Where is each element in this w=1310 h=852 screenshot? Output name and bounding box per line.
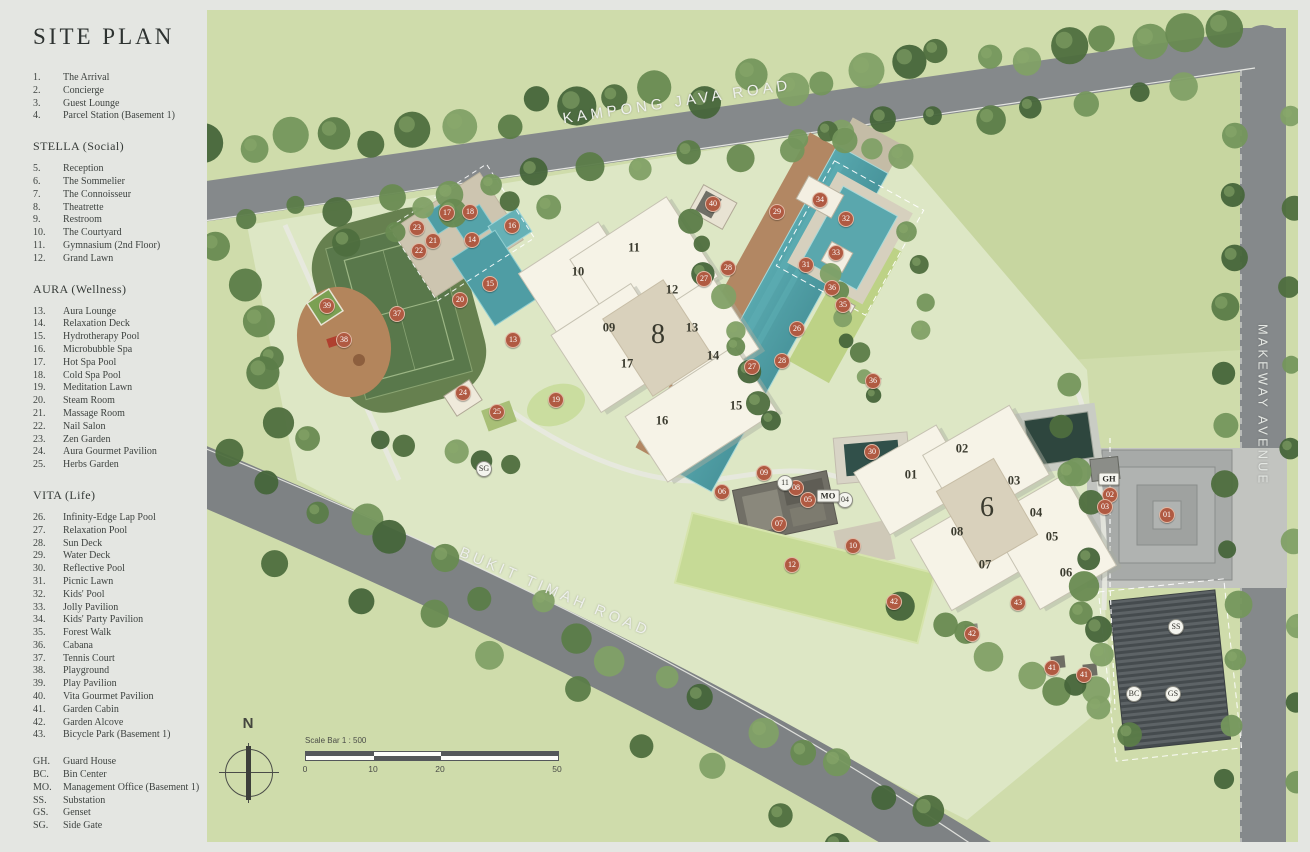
legend-item-number: 41.	[33, 704, 63, 717]
unit-label-16: 16	[656, 414, 669, 429]
legend-item: 31.Picnic Lawn	[33, 576, 207, 589]
legend-item-label: Vita Gourmet Pavilion	[63, 691, 207, 704]
legend-item: 35.Forest Walk	[33, 627, 207, 640]
legend-heading: VITA (Life)	[33, 488, 207, 503]
scale-tick: 10	[368, 764, 377, 774]
legend-item-number: 28.	[33, 538, 63, 551]
amenity-marker-42: 42	[964, 626, 980, 642]
legend-item-label: Herbs Garden	[63, 459, 207, 472]
legend-item-number: 14.	[33, 318, 63, 331]
legend-item-label: Cabana	[63, 640, 207, 653]
amenity-marker-15: 15	[482, 276, 498, 292]
road-label-makeway-avenue: MAKEWAY AVENUE	[1256, 324, 1271, 486]
unit-label-06: 06	[1060, 566, 1073, 581]
legend-item-number: 26.	[33, 512, 63, 525]
amenity-marker-14: 14	[464, 232, 480, 248]
legend-item-label: Genset	[63, 807, 207, 820]
legend-item: 33.Jolly Pavilion	[33, 602, 207, 615]
legend-item: 21.Massage Room	[33, 408, 207, 421]
amenity-marker-41: 41	[1076, 667, 1092, 683]
legend-item: 19.Meditation Lawn	[33, 382, 207, 395]
legend-item-label: Steam Room	[63, 395, 207, 408]
legend-panel: SITE PLAN 1.The Arrival2.Concierge3.Gues…	[0, 0, 207, 852]
legend-item-number: 15.	[33, 331, 63, 344]
legend-item: 3.Guest Lounge	[33, 98, 207, 111]
scale-tick: 50	[552, 764, 561, 774]
legend-item: BC.Bin Center	[33, 769, 207, 782]
legend-item-number: SG.	[33, 820, 63, 833]
legend-item: 6.The Sommelier	[33, 176, 207, 189]
unit-label-07: 07	[979, 558, 992, 573]
amenity-marker-36: 36	[824, 280, 840, 296]
legend-item: 12.Grand Lawn	[33, 253, 207, 266]
unit-label-10: 10	[572, 265, 585, 280]
legend-item-label: Restroom	[63, 214, 207, 227]
legend-item: 24.Aura Gourmet Pavilion	[33, 446, 207, 459]
legend-item-label: Microbubble Spa	[63, 344, 207, 357]
legend-item-label: The Courtyard	[63, 227, 207, 240]
legend-item-number: 6.	[33, 176, 63, 189]
amenity-marker-27: 27	[696, 271, 712, 287]
legend-item: 29.Water Deck	[33, 550, 207, 563]
amenity-marker-19: 19	[548, 392, 564, 408]
legend-item-number: 25.	[33, 459, 63, 472]
legend-item-number: 8.	[33, 202, 63, 215]
legend-item: 38.Playground	[33, 665, 207, 678]
legend-item-number: 27.	[33, 525, 63, 538]
unit-label-04: 04	[1030, 506, 1043, 521]
legend-item: GH.Guard House	[33, 756, 207, 769]
legend-item: 13.Aura Lounge	[33, 306, 207, 319]
legend-item-number: 22.	[33, 421, 63, 434]
legend-item-number: 7.	[33, 189, 63, 202]
compass-north-label: N	[243, 715, 254, 732]
amenity-marker-03: 03	[1097, 499, 1113, 515]
legend-item: 17.Hot Spa Pool	[33, 357, 207, 370]
legend-item-label: Bin Center	[63, 769, 207, 782]
legend-item-number: GS.	[33, 807, 63, 820]
amenity-marker-18: 18	[462, 204, 478, 220]
amenity-marker-12: 12	[784, 557, 800, 573]
legend-item-number: MO.	[33, 782, 63, 795]
amenity-marker-41: 41	[1044, 660, 1060, 676]
amenity-marker-10: 10	[845, 538, 861, 554]
amenity-marker-21: 21	[425, 233, 441, 249]
legend-item: 40.Vita Gourmet Pavilion	[33, 691, 207, 704]
legend-item-number: SS.	[33, 795, 63, 808]
legend-item-number: 20.	[33, 395, 63, 408]
legend-item: 39.Play Pavilion	[33, 678, 207, 691]
legend-item-label: Meditation Lawn	[63, 382, 207, 395]
legend-item: 27.Relaxation Pool	[33, 525, 207, 538]
legend-item: 9.Restroom	[33, 214, 207, 227]
unit-label-15: 15	[730, 399, 743, 414]
legend-item-number: 34.	[33, 614, 63, 627]
site-plan-page: SITE PLAN 1.The Arrival2.Concierge3.Gues…	[0, 0, 1310, 852]
amenity-marker-34: 34	[812, 192, 828, 208]
amenity-marker-35: 35	[835, 297, 851, 313]
legend-item-number: 1.	[33, 72, 63, 85]
legend-item-label: Management Office (Basement 1)	[63, 782, 207, 795]
legend-item: 34.Kids' Party Pavilion	[33, 614, 207, 627]
legend-item-number: 35.	[33, 627, 63, 640]
unit-label-05: 05	[1046, 530, 1059, 545]
legend-item-label: Kids' Pool	[63, 589, 207, 602]
amenity-marker-09: 09	[756, 465, 772, 481]
legend-item-label: Infinity-Edge Lap Pool	[63, 512, 207, 525]
facility-marker-BC: BC	[1126, 686, 1142, 702]
legend-item-label: Theatrette	[63, 202, 207, 215]
amenity-marker-27: 27	[744, 359, 760, 375]
legend-item: 5.Reception	[33, 163, 207, 176]
amenity-marker-37: 37	[389, 306, 405, 322]
tower-number-8: 8	[651, 321, 665, 349]
legend-item-number: 40.	[33, 691, 63, 704]
legend-item-label: Grand Lawn	[63, 253, 207, 266]
legend-item-label: Reception	[63, 163, 207, 176]
legend-item-label: Side Gate	[63, 820, 207, 833]
legend-item: 20.Steam Room	[33, 395, 207, 408]
legend-item-label: Water Deck	[63, 550, 207, 563]
legend-item: 43.Bicycle Park (Basement 1)	[33, 729, 207, 742]
amenity-marker-23: 23	[409, 220, 425, 236]
legend-item-label: Garden Alcove	[63, 717, 207, 730]
facility-marker-MO: MO	[817, 490, 840, 503]
legend-item: 7.The Connoisseur	[33, 189, 207, 202]
scale-bar-label: Scale Bar 1 : 500	[305, 736, 366, 745]
legend-item-number: 12.	[33, 253, 63, 266]
map-illustration	[207, 10, 1298, 842]
amenity-marker-38: 38	[336, 332, 352, 348]
legend-item-number: BC.	[33, 769, 63, 782]
legend-item-label: Aura Lounge	[63, 306, 207, 319]
legend-item-number: 31.	[33, 576, 63, 589]
amenity-marker-42: 42	[886, 594, 902, 610]
legend-item-number: 5.	[33, 163, 63, 176]
legend-item-label: Hot Spa Pool	[63, 357, 207, 370]
legend-item: 32.Kids' Pool	[33, 589, 207, 602]
legend-item-label: Aura Gourmet Pavilion	[63, 446, 207, 459]
amenity-marker-28: 28	[720, 260, 736, 276]
facility-marker-SS: SS	[1168, 619, 1184, 635]
legend-item: MO.Management Office (Basement 1)	[33, 782, 207, 795]
legend-group: STELLA (Social)5.Reception6.The Sommelie…	[33, 139, 207, 265]
amenity-marker-30: 30	[864, 444, 880, 460]
legend-item: 25.Herbs Garden	[33, 459, 207, 472]
legend-item-label: Reflective Pool	[63, 563, 207, 576]
amenity-marker-40: 40	[705, 196, 721, 212]
amenity-marker-33: 33	[828, 245, 844, 261]
legend-item: 10.The Courtyard	[33, 227, 207, 240]
legend-item-number: 29.	[33, 550, 63, 563]
legend-item-number: 10.	[33, 227, 63, 240]
legend-item-number: 23.	[33, 434, 63, 447]
legend-item-number: 30.	[33, 563, 63, 576]
amenity-marker-20: 20	[452, 292, 468, 308]
legend-item-label: Garden Cabin	[63, 704, 207, 717]
legend-item: 22.Nail Salon	[33, 421, 207, 434]
legend-item: SS.Substation	[33, 795, 207, 808]
legend-item-label: Substation	[63, 795, 207, 808]
facility-marker-GH: GH	[1098, 473, 1119, 486]
legend-group: AURA (Wellness)13.Aura Lounge14.Relaxati…	[33, 282, 207, 472]
compass-icon	[225, 749, 273, 797]
legend-item: 8.Theatrette	[33, 202, 207, 215]
legend-item-number: 18.	[33, 370, 63, 383]
unit-label-13: 13	[686, 321, 699, 336]
legend-item: 36.Cabana	[33, 640, 207, 653]
amenity-marker-13: 13	[505, 332, 521, 348]
legend-item-label: Hydrotherapy Pool	[63, 331, 207, 344]
facility-marker-04: 04	[837, 492, 853, 508]
legend-item: 23.Zen Garden	[33, 434, 207, 447]
legend-item-label: Play Pavilion	[63, 678, 207, 691]
legend-item-label: Guest Lounge	[63, 98, 207, 111]
legend-item-label: Jolly Pavilion	[63, 602, 207, 615]
legend-item: GS.Genset	[33, 807, 207, 820]
legend-item: 41.Garden Cabin	[33, 704, 207, 717]
legend-item-number: 43.	[33, 729, 63, 742]
legend-item-label: Sun Deck	[63, 538, 207, 551]
legend-item-number: GH.	[33, 756, 63, 769]
legend-item-number: 42.	[33, 717, 63, 730]
legend-item-label: Nail Salon	[63, 421, 207, 434]
legend-item-number: 32.	[33, 589, 63, 602]
legend-item-number: 3.	[33, 98, 63, 111]
tower-number-6: 6	[980, 494, 994, 522]
legend-item-number: 11.	[33, 240, 63, 253]
amenity-marker-26: 26	[789, 321, 805, 337]
legend-item-label: Gymnasium (2nd Floor)	[63, 240, 207, 253]
legend-heading: AURA (Wellness)	[33, 282, 207, 297]
unit-label-03: 03	[1008, 474, 1021, 489]
unit-label-12: 12	[666, 283, 679, 298]
amenity-marker-43: 43	[1010, 595, 1026, 611]
legend-item: 16.Microbubble Spa	[33, 344, 207, 357]
unit-label-11: 11	[628, 241, 640, 256]
legend-item: SG.Side Gate	[33, 820, 207, 833]
legend-item-number: 39.	[33, 678, 63, 691]
legend-group: VITA (Life)26.Infinity-Edge Lap Pool27.R…	[33, 488, 207, 742]
legend-item: 14.Relaxation Deck	[33, 318, 207, 331]
legend-item-label: Playground	[63, 665, 207, 678]
legend-item-label: The Connoisseur	[63, 189, 207, 202]
legend-item-label: Concierge	[63, 85, 207, 98]
legend-item-number: 19.	[33, 382, 63, 395]
page-title: SITE PLAN	[33, 24, 207, 50]
scale-tick: 0	[303, 764, 308, 774]
legend-item-label: Relaxation Pool	[63, 525, 207, 538]
amenity-marker-22: 22	[411, 243, 427, 259]
amenity-marker-07: 07	[771, 516, 787, 532]
legend-item-number: 16.	[33, 344, 63, 357]
legend-item: 15.Hydrotherapy Pool	[33, 331, 207, 344]
unit-label-14: 14	[707, 349, 720, 364]
legend-item-number: 21.	[33, 408, 63, 421]
amenity-marker-31: 31	[798, 257, 814, 273]
scale-bar	[305, 751, 559, 761]
legend-group: 1.The Arrival2.Concierge3.Guest Lounge4.…	[33, 72, 207, 123]
legend-item: 2.Concierge	[33, 85, 207, 98]
legend-item-label: Parcel Station (Basement 1)	[63, 110, 207, 123]
legend-item: 26.Infinity-Edge Lap Pool	[33, 512, 207, 525]
legend-item: 4.Parcel Station (Basement 1)	[33, 110, 207, 123]
facility-marker-GS: GS	[1165, 686, 1181, 702]
unit-label-01: 01	[905, 468, 918, 483]
legend-item-label: The Sommelier	[63, 176, 207, 189]
legend-item: 37.Tennis Court	[33, 653, 207, 666]
amenity-marker-06: 06	[714, 484, 730, 500]
unit-label-09: 09	[603, 321, 616, 336]
amenity-marker-29: 29	[769, 204, 785, 220]
legend-item-label: Massage Room	[63, 408, 207, 421]
legend-item-number: 9.	[33, 214, 63, 227]
legend-item-number: 37.	[33, 653, 63, 666]
amenity-marker-05: 05	[800, 492, 816, 508]
legend-item-label: Kids' Party Pavilion	[63, 614, 207, 627]
amenity-marker-17: 17	[439, 205, 455, 221]
legend-item: 11.Gymnasium (2nd Floor)	[33, 240, 207, 253]
legend-item-number: 36.	[33, 640, 63, 653]
unit-label-17: 17	[621, 357, 634, 372]
amenity-marker-24: 24	[455, 385, 471, 401]
legend-group: GH.Guard HouseBC.Bin CenterMO.Management…	[33, 756, 207, 833]
scale-tick: 20	[435, 764, 444, 774]
legend-item-number: 2.	[33, 85, 63, 98]
amenity-marker-28: 28	[774, 353, 790, 369]
amenity-marker-36: 36	[865, 373, 881, 389]
legend-item-label: Picnic Lawn	[63, 576, 207, 589]
facility-marker-11: 11	[777, 475, 793, 491]
legend-item: 1.The Arrival	[33, 72, 207, 85]
legend-item-number: 38.	[33, 665, 63, 678]
amenity-marker-16: 16	[504, 218, 520, 234]
legend-item-number: 13.	[33, 306, 63, 319]
legend-item: 28.Sun Deck	[33, 538, 207, 551]
legend-heading: STELLA (Social)	[33, 139, 207, 154]
site-plan-map: KAMPONG JAVA ROAD BUKIT TIMAH ROAD MAKEW…	[207, 10, 1298, 842]
legend-item-label: Cold Spa Pool	[63, 370, 207, 383]
amenity-marker-01: 01	[1159, 507, 1175, 523]
legend-item: 42.Garden Alcove	[33, 717, 207, 730]
unit-label-02: 02	[956, 442, 969, 457]
legend-item-number: 33.	[33, 602, 63, 615]
legend-item: 30.Reflective Pool	[33, 563, 207, 576]
legend-item-number: 24.	[33, 446, 63, 459]
facility-marker-SG: SG	[476, 461, 492, 477]
legend-item-number: 17.	[33, 357, 63, 370]
legend-item-label: Relaxation Deck	[63, 318, 207, 331]
amenity-marker-25: 25	[489, 404, 505, 420]
legend-item-number: 4.	[33, 110, 63, 123]
legend-groups: 1.The Arrival2.Concierge3.Guest Lounge4.…	[33, 72, 207, 833]
amenity-marker-32: 32	[838, 211, 854, 227]
legend-item: 18.Cold Spa Pool	[33, 370, 207, 383]
amenity-marker-39: 39	[319, 298, 335, 314]
unit-label-08: 08	[951, 525, 964, 540]
legend-item-label: Forest Walk	[63, 627, 207, 640]
legend-item-label: Zen Garden	[63, 434, 207, 447]
legend-item-label: Bicycle Park (Basement 1)	[63, 729, 207, 742]
legend-item-label: Tennis Court	[63, 653, 207, 666]
legend-item-label: The Arrival	[63, 72, 207, 85]
legend-item-label: Guard House	[63, 756, 207, 769]
